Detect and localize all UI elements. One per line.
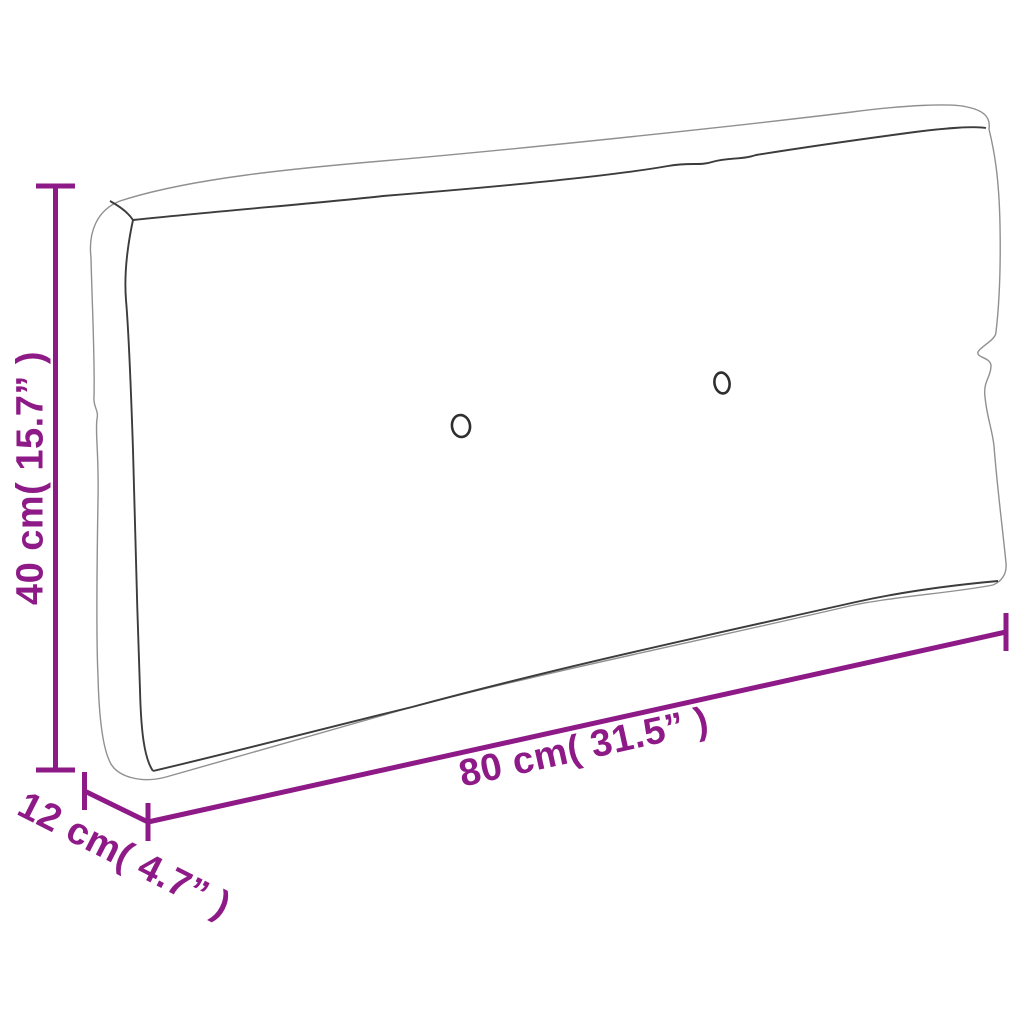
cushion-top-seam <box>110 127 986 220</box>
cushion-button-left <box>450 414 471 439</box>
dimension-diagram: 40 cm( 15.7” ) 12 cm( 4.7” ) 80 cm( 31.5… <box>0 0 1024 1024</box>
height-dimension-label: 40 cm( 15.7” ) <box>10 351 53 605</box>
width-dimension-line <box>148 613 1006 822</box>
cushion-outer-outline <box>90 105 1006 780</box>
cushion-button-right <box>713 371 731 394</box>
cushion-left-seam <box>125 220 153 771</box>
